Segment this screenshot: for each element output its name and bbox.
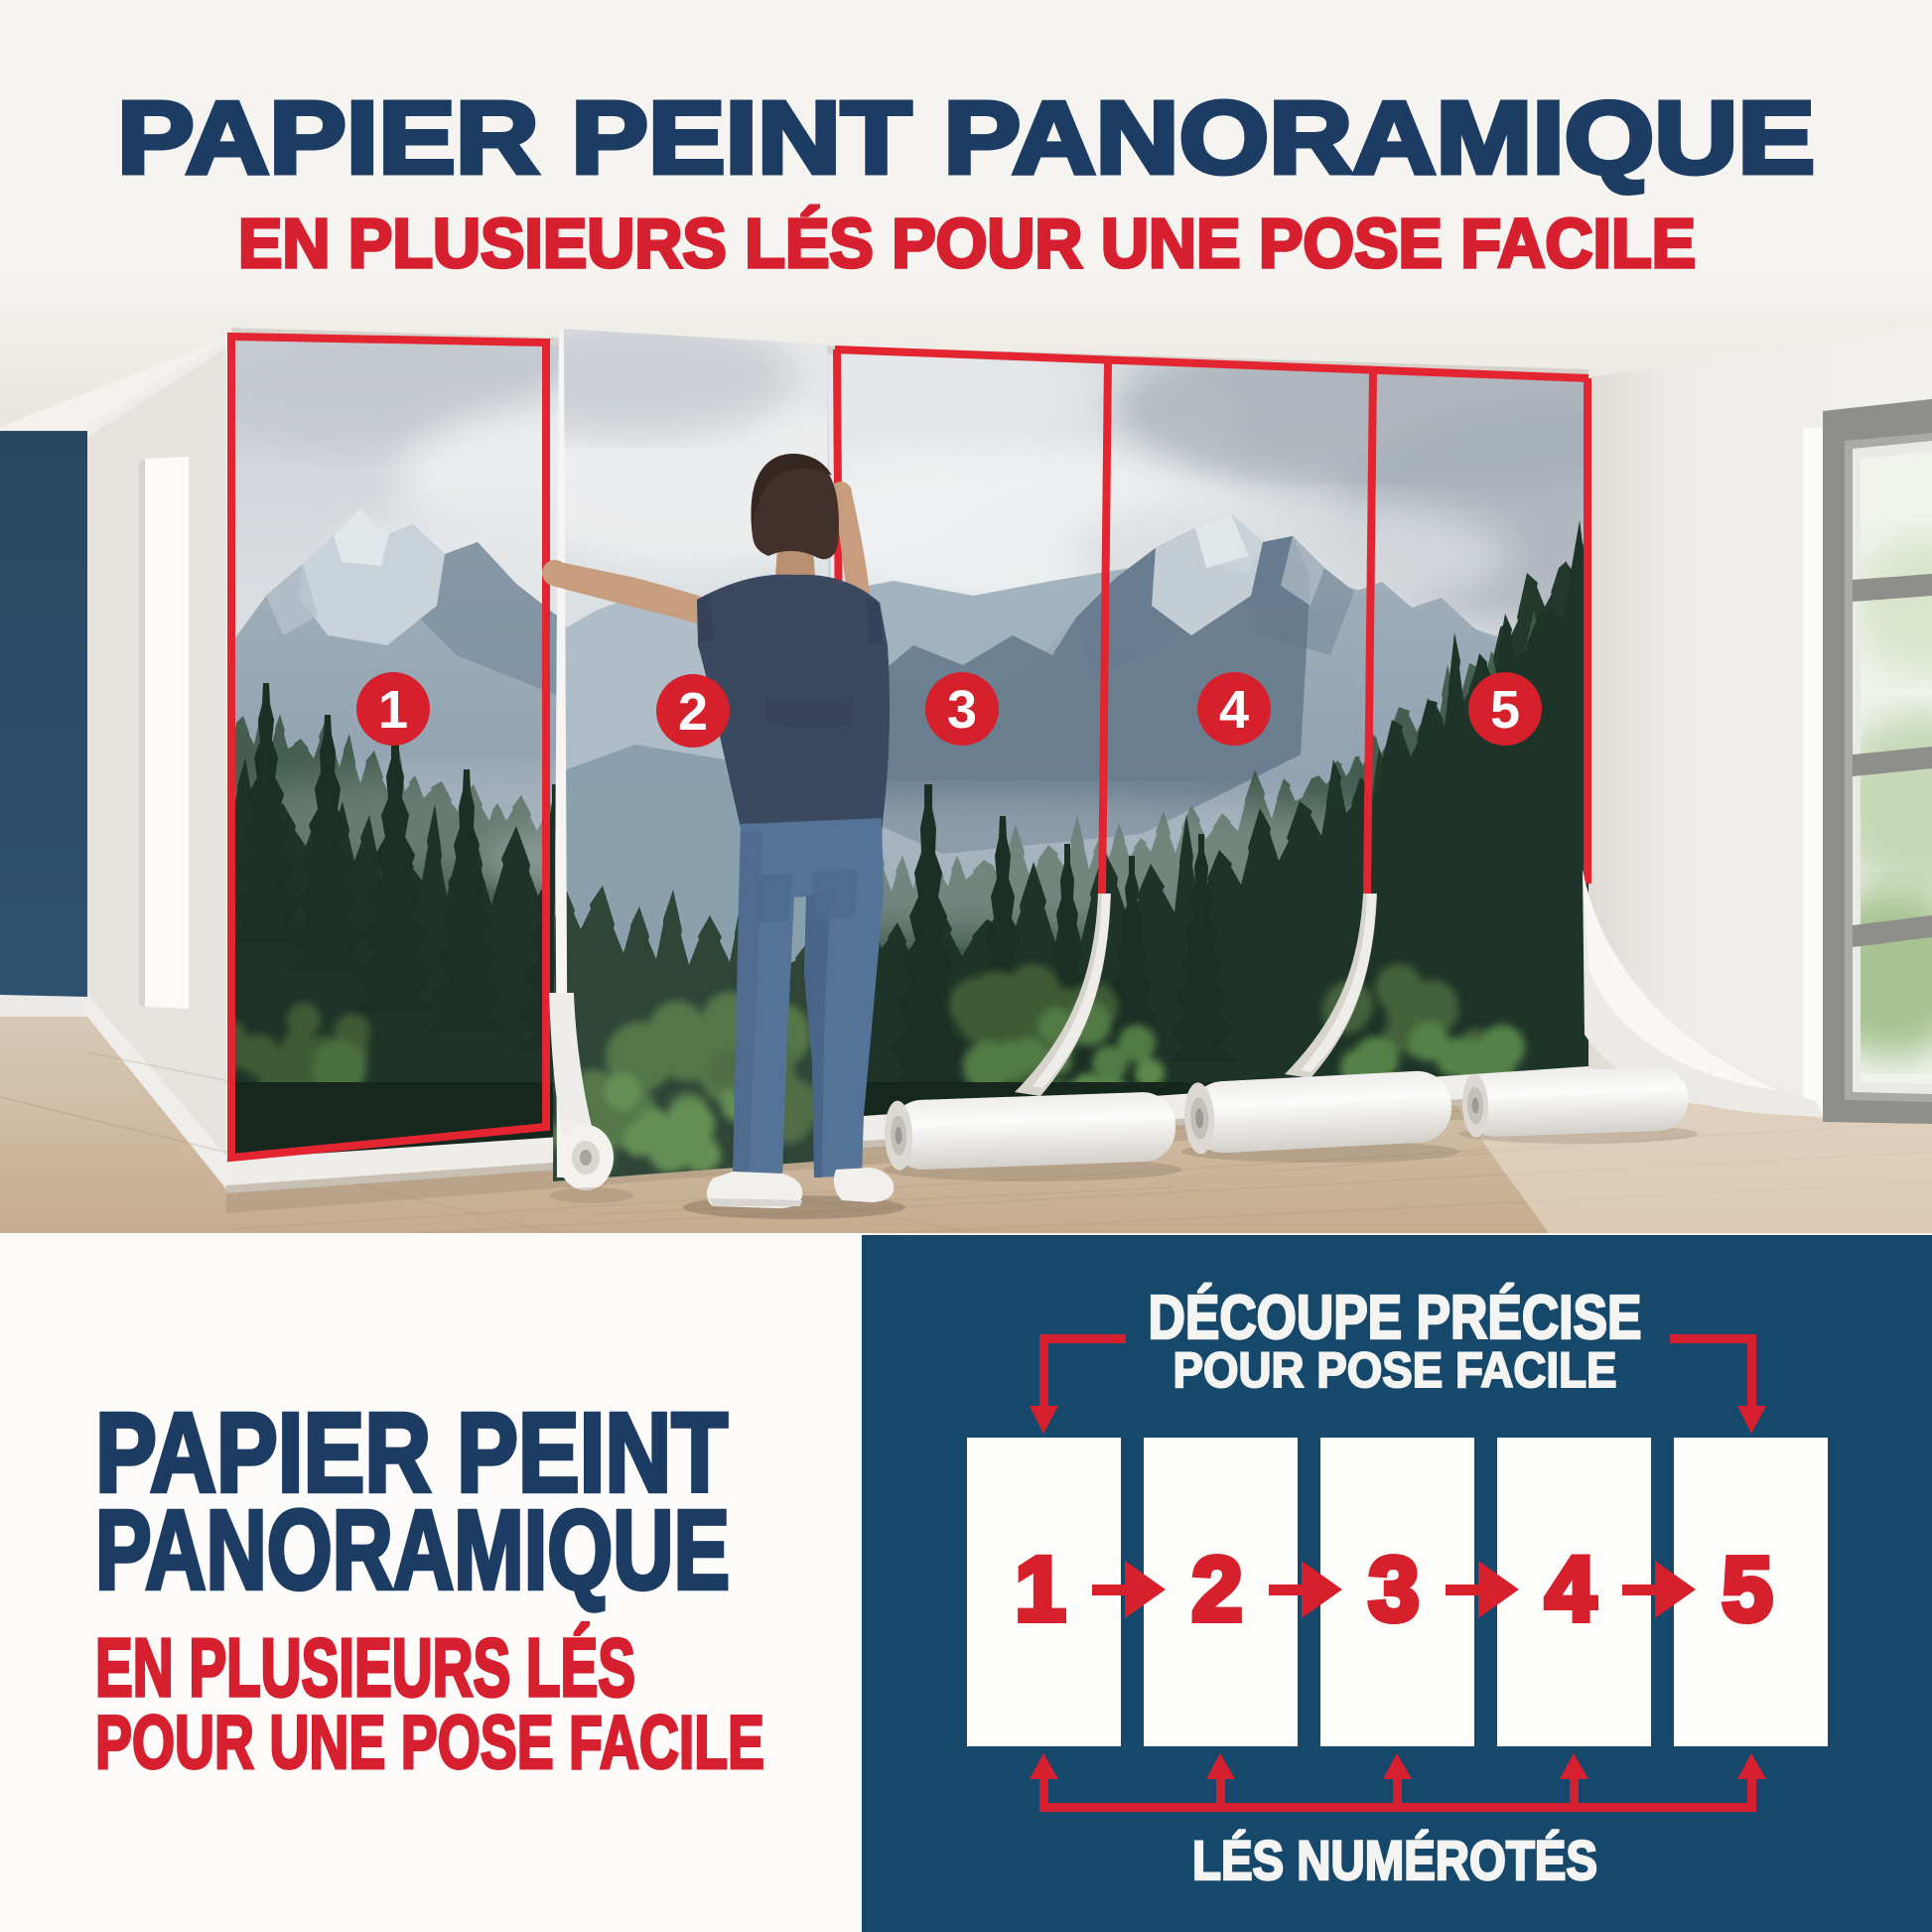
svg-text:PAPIER PEINT PANORAMIQUE: PAPIER PEINT PANORAMIQUE <box>117 80 1815 195</box>
svg-text:POUR POSE FACILE: POUR POSE FACILE <box>1173 1342 1617 1398</box>
svg-text:3: 3 <box>1368 1539 1419 1640</box>
svg-text:3: 3 <box>947 680 977 740</box>
svg-text:4: 4 <box>1545 1539 1595 1640</box>
svg-text:1: 1 <box>1015 1539 1065 1640</box>
svg-text:POUR UNE POSE FACILE: POUR UNE POSE FACILE <box>95 1701 764 1785</box>
svg-text:EN PLUSIEURS LÉS POUR UNE POSE: EN PLUSIEURS LÉS POUR UNE POSE FACILE <box>238 205 1696 282</box>
svg-text:1: 1 <box>378 680 408 740</box>
svg-text:LÉS NUMÉROTÉS: LÉS NUMÉROTÉS <box>1192 1829 1597 1891</box>
svg-text:2: 2 <box>1191 1539 1242 1640</box>
svg-text:5: 5 <box>1722 1539 1772 1640</box>
svg-text:5: 5 <box>1490 680 1520 740</box>
svg-text:4: 4 <box>1219 680 1249 740</box>
svg-text:2: 2 <box>678 682 708 742</box>
svg-text:PANORAMIQUE: PANORAMIQUE <box>95 1487 730 1612</box>
